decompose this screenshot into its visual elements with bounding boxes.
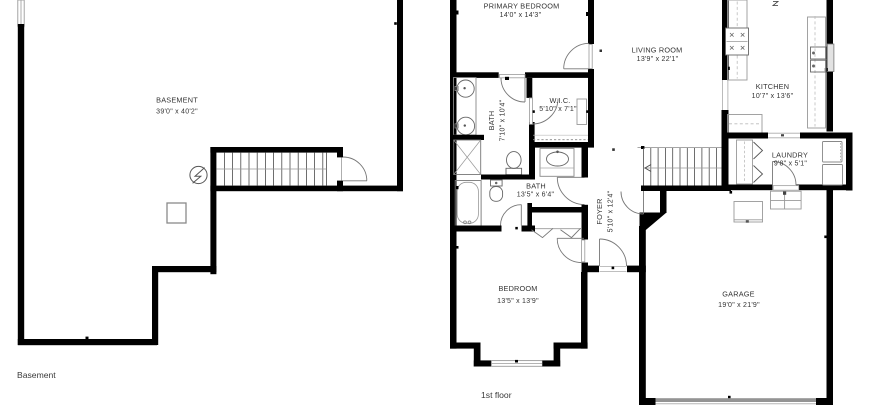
- svg-text:W.I.C.: W.I.C.: [549, 96, 570, 105]
- svg-text:BASEMENT: BASEMENT: [156, 96, 198, 105]
- svg-text:GARAGE: GARAGE: [722, 289, 754, 298]
- svg-text:Basement: Basement: [17, 370, 56, 380]
- svg-text:FOYER: FOYER: [595, 198, 604, 224]
- svg-text:PRIMARY BEDROOM: PRIMARY BEDROOM: [484, 1, 560, 10]
- svg-text:BEDROOM: BEDROOM: [498, 284, 537, 293]
- svg-text:19'0" x 21'9": 19'0" x 21'9": [718, 302, 760, 309]
- svg-text:5'10" x 12'4": 5'10" x 12'4": [608, 190, 615, 232]
- svg-text:13'5" x 6'4": 13'5" x 6'4": [517, 192, 555, 199]
- svg-text:13'5" x 13'9": 13'5" x 13'9": [497, 298, 539, 305]
- svg-text:KITCHEN: KITCHEN: [756, 82, 789, 91]
- svg-text:LIVING ROOM: LIVING ROOM: [632, 46, 683, 55]
- svg-text:7'10" x 10'4": 7'10" x 10'4": [500, 99, 507, 141]
- svg-text:BATH: BATH: [526, 181, 546, 190]
- svg-text:39'0" x 40'2": 39'0" x 40'2": [156, 109, 198, 116]
- svg-text:BATH: BATH: [487, 111, 496, 131]
- svg-text:14'0" x 14'3": 14'0" x 14'3": [500, 12, 542, 19]
- svg-text:LAUNDRY: LAUNDRY: [772, 150, 808, 159]
- svg-text:10'7" x 13'6": 10'7" x 13'6": [752, 93, 794, 100]
- svg-text:9'8" x 5'1": 9'8" x 5'1": [774, 160, 808, 167]
- svg-text:1st floor: 1st floor: [481, 390, 512, 400]
- svg-text:13'9" x 22'1": 13'9" x 22'1": [637, 56, 679, 63]
- svg-text:5'10" x 7'1": 5'10" x 7'1": [539, 106, 577, 113]
